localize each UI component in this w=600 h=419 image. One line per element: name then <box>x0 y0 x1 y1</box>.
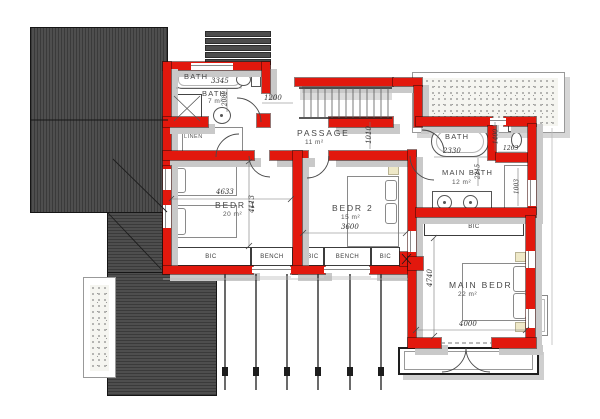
roof-upper-left <box>30 27 168 213</box>
cell-label: BIC <box>307 254 319 260</box>
window <box>163 205 171 228</box>
wall <box>163 117 208 127</box>
room-area-bedroom1: 20 m² <box>223 211 242 218</box>
wall <box>416 208 536 217</box>
main-bathtub-dim: 2330 <box>443 147 461 155</box>
cell-label: BIC <box>380 254 392 260</box>
bedside-table <box>515 322 526 332</box>
bic-strip-main-bedroom: BIC <box>424 217 524 236</box>
wall <box>329 117 393 127</box>
window <box>408 231 416 252</box>
patio-slab-bottom-left <box>90 285 109 371</box>
dim-wc-depth: 1400 <box>493 122 500 152</box>
bathtub-label: BATH <box>184 72 208 81</box>
chimney-inner <box>536 299 545 332</box>
room-label-linen: LINEN <box>184 134 203 140</box>
pillow <box>513 293 527 319</box>
dim-passage-left: 1200 <box>264 94 282 102</box>
bic-label: BIC <box>468 224 480 230</box>
wall <box>270 151 308 160</box>
cell-label: BIC <box>205 254 217 260</box>
dim-main-bath-depth: 2215 <box>475 157 482 187</box>
pillow <box>174 168 186 193</box>
bedside-table <box>515 252 526 262</box>
window <box>163 169 171 190</box>
stair-landing-shade <box>300 88 392 100</box>
wall <box>295 78 393 86</box>
dim-main-bedroom-width: 4000 <box>459 320 477 328</box>
wall <box>163 266 253 274</box>
dim-bedroom1-depth: 4113 <box>248 189 256 219</box>
wall <box>393 78 422 86</box>
room-label-passage: PASSAGE <box>297 128 350 138</box>
roof-lower-left-a <box>107 212 163 274</box>
window <box>191 63 233 70</box>
wall <box>293 151 302 274</box>
room-area-main-bedroom: 22 m² <box>458 291 477 298</box>
basin-tap <box>220 114 223 117</box>
wall <box>492 338 536 348</box>
wall <box>163 151 254 160</box>
architectural-floor-plan: BIC BIC BENCH BIC BENCH BIC <box>0 0 600 419</box>
balcony-inner <box>404 351 533 370</box>
basin-tap <box>443 201 446 204</box>
window <box>526 251 535 268</box>
storage-cell-bic: BIC <box>371 247 400 266</box>
basin-tap <box>469 201 472 204</box>
window <box>526 309 535 328</box>
door-arc-bedroom2 <box>307 156 329 178</box>
toilet-bowl <box>236 73 251 86</box>
storage-cell-bic: BIC <box>302 247 324 266</box>
room-label-main-bedroom: MAIN BEDR <box>449 280 512 290</box>
dim-passage-width: 1010 <box>365 120 373 150</box>
room-label-bedroom2: BEDR 2 <box>332 203 374 213</box>
bedside-table <box>388 166 399 175</box>
storage-cell-bench: BENCH <box>251 247 293 266</box>
exterior-step <box>205 52 271 58</box>
wall <box>291 266 325 274</box>
window <box>252 267 291 273</box>
cell-label: BENCH <box>336 254 360 260</box>
dim-bath-depth: 2082 <box>222 84 229 114</box>
pillow <box>385 180 397 201</box>
roof-lower-left-b <box>107 272 217 396</box>
exterior-step <box>205 45 271 51</box>
dim-closet: 1003 <box>514 172 521 202</box>
deck-posts <box>225 274 381 390</box>
wall <box>257 114 270 127</box>
room-label-main-bath: MAIN BATH <box>442 168 493 177</box>
exterior-step <box>205 31 271 37</box>
toilet-cistern <box>251 70 261 87</box>
window <box>528 180 536 206</box>
room-area-main-bath: 12 m² <box>452 179 471 186</box>
dim-bedroom1-width: 4633 <box>216 188 234 196</box>
window <box>324 267 370 273</box>
pillow <box>174 208 186 235</box>
wall <box>370 266 410 274</box>
storage-cell-bic: BIC <box>171 247 251 266</box>
storage-cell-bench: BENCH <box>324 247 371 266</box>
room-area-passage: 11 m² <box>305 139 324 146</box>
pillow <box>385 203 397 224</box>
pillow <box>513 266 527 292</box>
wall <box>262 62 270 93</box>
wall <box>408 338 441 348</box>
linen-cupboard <box>182 127 243 154</box>
main-bathtub-label: BATH <box>445 132 469 141</box>
wall <box>416 117 492 126</box>
room-area-bedroom2: 15 m² <box>341 214 360 221</box>
dim-wc-width: 1263 <box>503 145 518 152</box>
wall-pier <box>408 257 423 270</box>
wall <box>329 151 416 160</box>
dim-bedroom2-width: 3600 <box>341 223 359 231</box>
exterior-step <box>205 38 271 44</box>
cell-label: BENCH <box>260 254 284 260</box>
deck-post-feet <box>222 367 384 376</box>
dim-main-bedroom-depth: 4740 <box>426 263 434 293</box>
